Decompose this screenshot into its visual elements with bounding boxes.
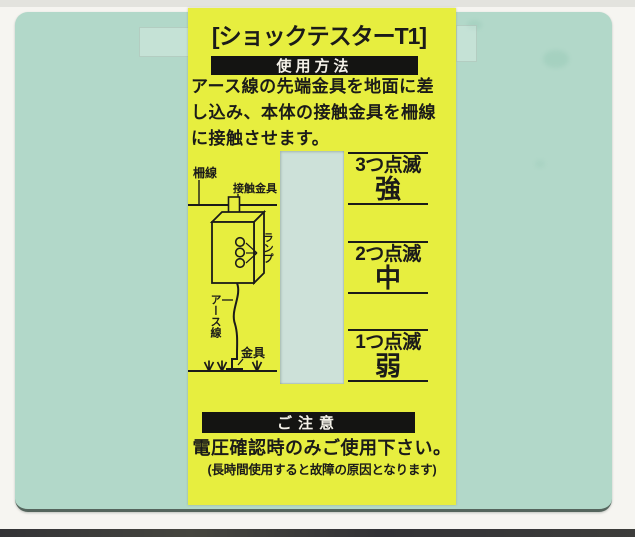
fence-wire-label: 柵線 <box>193 165 217 180</box>
caution-sub-text: (長時間使用すると故障の原因となります) <box>189 459 455 478</box>
instruction-line: アース線の先端金具を地面に差 <box>191 74 453 100</box>
instruction-line: に接触させます。 <box>191 126 453 152</box>
card-stain <box>543 50 569 68</box>
strength-level-label: 弱 <box>348 353 428 380</box>
tester-body-drawing <box>212 212 264 283</box>
scanner-top-edge <box>0 0 635 7</box>
usage-instructions: アース線の先端金具を地面に差 し込み、本体の接触金具を柵線 に接触させます。 <box>191 74 453 152</box>
tape-strip-right <box>456 25 477 62</box>
blink-indicator-medium: 2つ点滅 中 <box>348 241 428 294</box>
earth-wire-line <box>232 283 238 369</box>
caution-heading: ご注意 <box>277 412 340 433</box>
strength-level-label: 強 <box>348 176 428 203</box>
device-diagram: 柵線 接触金具 ランプ アース線 金具 <box>185 158 285 383</box>
usage-heading: 使用方法 <box>276 55 352 76</box>
earth-wire-label: アース線 <box>209 294 222 339</box>
scanned-instruction-card: [ショックテスターT1] 使用方法 アース線の先端金具を地面に差 し込み、本体の… <box>0 0 635 537</box>
caution-main-text: 電圧確認時のみご使用下さい。 <box>190 434 454 460</box>
tape-strip-left <box>139 27 190 57</box>
contact-fitting-label: 接触金具 <box>233 181 277 195</box>
caution-section-header: ご注意 <box>202 412 415 433</box>
label-title: [ショックテスターT1] <box>188 17 450 51</box>
card-stain <box>535 160 545 168</box>
lamp-label: ランプ <box>262 232 274 264</box>
tester-window-cutout <box>280 151 344 384</box>
scanner-bottom-edge <box>0 529 635 537</box>
strength-level-label: 中 <box>348 265 428 292</box>
blink-indicator-weak: 1つ点滅 弱 <box>348 329 428 382</box>
instruction-line: し込み、本体の接触金具を柵線 <box>191 100 453 126</box>
usage-section-header: 使用方法 <box>211 56 418 75</box>
blink-indicator-strong: 3つ点滅 強 <box>348 152 428 205</box>
fitting-label: 金具 <box>240 345 265 360</box>
